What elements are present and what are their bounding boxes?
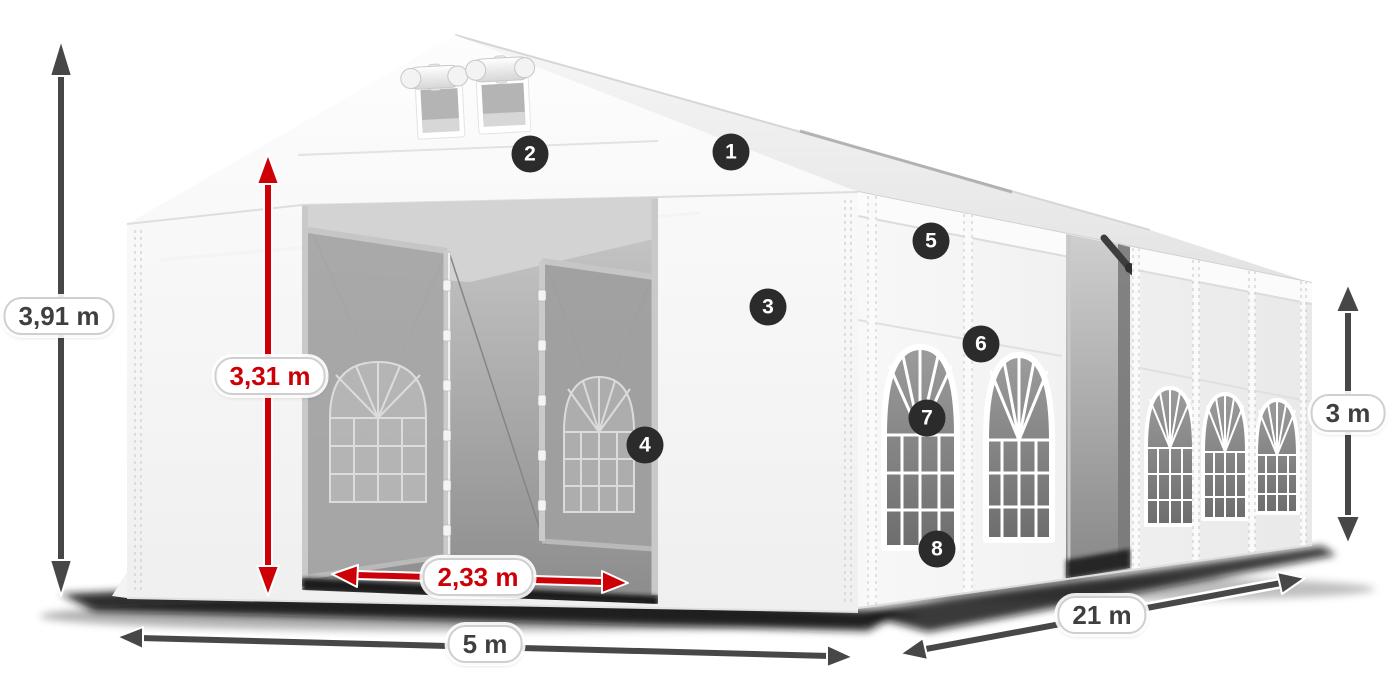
- callout-badge-5: 5: [913, 223, 950, 260]
- side-window-3: [1146, 388, 1194, 525]
- callout-badge-8: 8: [919, 531, 956, 568]
- tent-illustration: [0, 0, 1400, 700]
- entrance-door-left: [308, 230, 451, 577]
- callout-badge-7: 7: [909, 400, 946, 437]
- callout-badge-3: 3: [750, 289, 787, 326]
- entrance-door-right: [538, 261, 654, 549]
- tent-dimensions-diagram: 3,91 m 3,31 m 2,33 m 5 m 21 m 3 m 1 2 3 …: [0, 0, 1400, 700]
- door-window-print: [330, 362, 426, 502]
- entrance-opening: [296, 197, 664, 610]
- side-door-opening: [1066, 234, 1135, 579]
- callout-badge-6: 6: [963, 326, 1000, 363]
- front-width-label: 5 m: [448, 625, 523, 663]
- callout-badge-2: 2: [512, 136, 549, 173]
- callout-badge-4: 4: [627, 427, 664, 464]
- total-height-label: 3,91 m: [4, 297, 115, 335]
- callout-badge-1: 1: [713, 134, 750, 171]
- side-height-label: 3 m: [1311, 394, 1386, 432]
- side-window-5: [1256, 400, 1298, 513]
- entrance-width-label: 2,33 m: [423, 558, 534, 596]
- side-window-4: [1203, 394, 1247, 519]
- entrance-height-label: 3,31 m: [215, 357, 326, 395]
- door-window-print: [564, 377, 634, 512]
- side-window-2: [986, 355, 1052, 540]
- side-length-label: 21 m: [1057, 596, 1146, 634]
- side-window-1: [884, 347, 957, 548]
